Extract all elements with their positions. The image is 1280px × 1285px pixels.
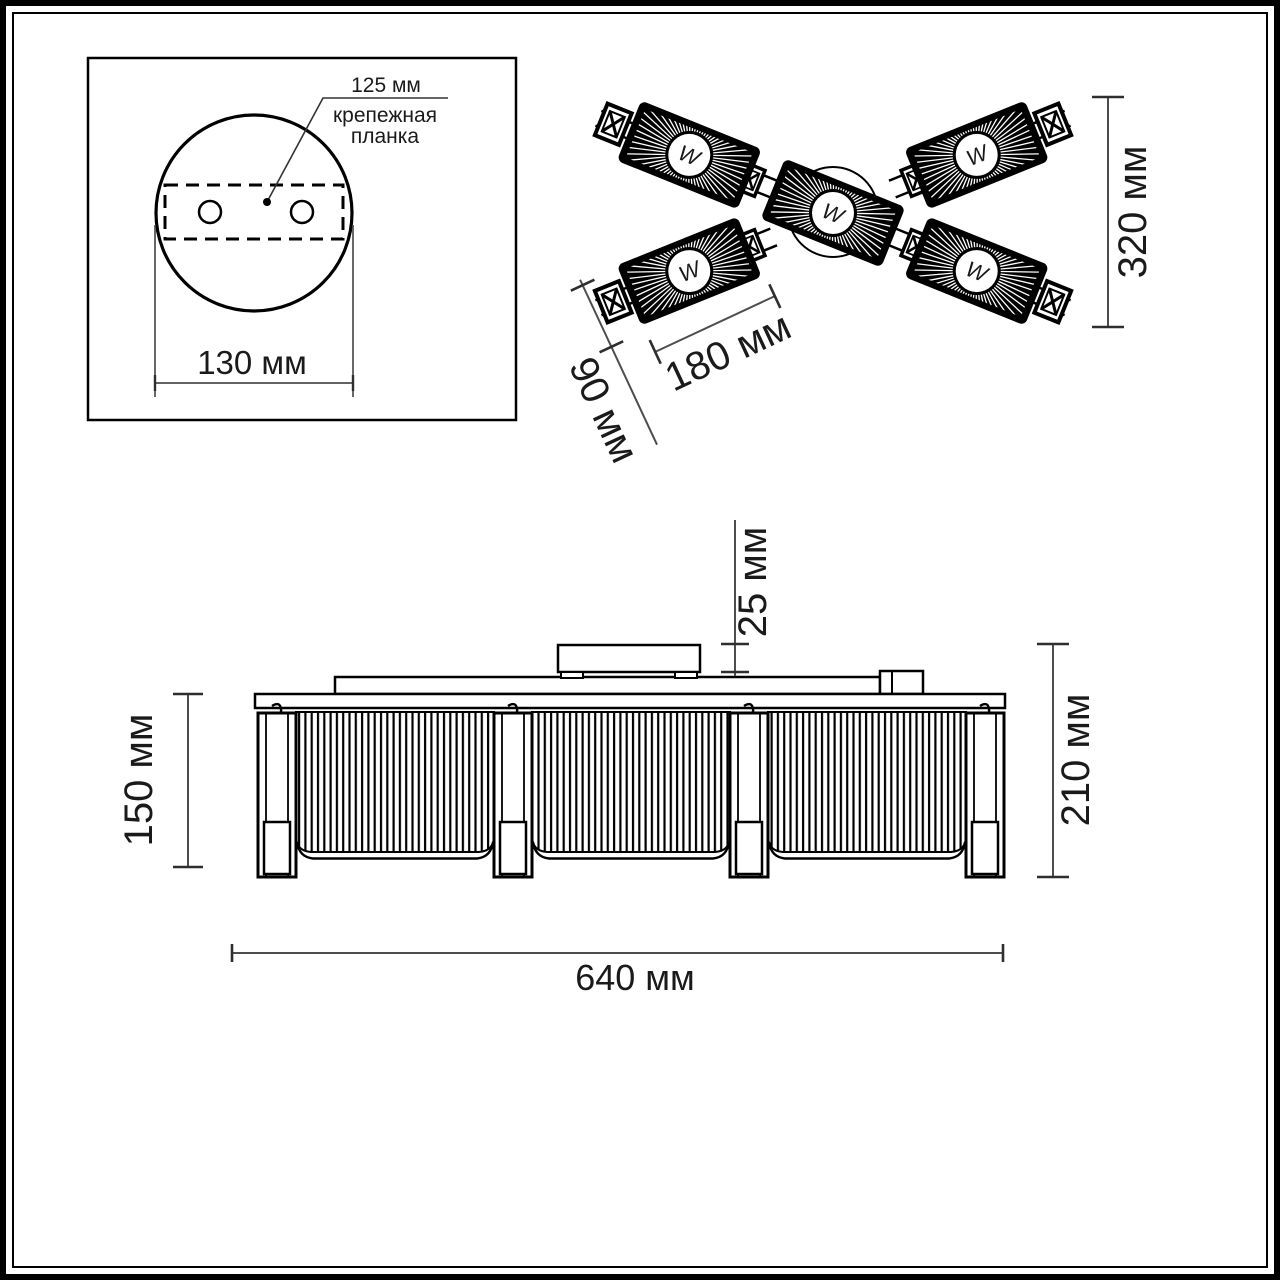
top-view: 320 мм 180 мм 90 мм [529, 44, 1155, 469]
outer-frame [3, 3, 1277, 1277]
dim-150-label: 150 мм [117, 714, 161, 847]
post-3 [730, 704, 768, 877]
drawing-page: W [0, 0, 1280, 1280]
mount-plate-step [880, 671, 923, 694]
dim-640-label: 640 мм [575, 957, 695, 998]
post-1 [258, 704, 296, 877]
mount-plate-upper [335, 677, 880, 694]
side-view: 25 мм 150 мм 210 мм 640 мм [117, 520, 1098, 998]
leader-dot [263, 198, 271, 206]
inner-frame [13, 13, 1267, 1267]
dim-90-label: 90 мм [560, 351, 647, 470]
dim-320-label: 320 мм [1111, 146, 1155, 279]
mounting-bracket-slot [165, 185, 343, 239]
bracket-label-line1: крепежная [333, 104, 437, 127]
screw-hole-right [291, 201, 313, 223]
mounting-plate-panel: 125 мм крепежная планка 130 мм [88, 58, 516, 420]
shade-upper-left [585, 51, 793, 259]
bracket-label-line2: планка [351, 125, 420, 148]
dim-210-label: 210 мм [1054, 694, 1098, 827]
shade-center [729, 109, 937, 317]
shade-sections [296, 712, 966, 859]
mount-plate-lower [255, 694, 1005, 708]
dim-130-label: 130 мм [197, 344, 307, 381]
shade-section-2 [532, 712, 730, 859]
post-4 [966, 704, 1004, 877]
canopy [558, 645, 700, 678]
shade-section-3 [768, 712, 966, 859]
post-2 [494, 704, 532, 877]
screw-hole-left [199, 201, 221, 223]
dim-150 [173, 694, 203, 867]
technical-drawing: W [0, 0, 1280, 1280]
shade-section-1 [296, 712, 494, 859]
dim-25-label: 25 мм [731, 527, 775, 638]
mounting-plate-circle [156, 115, 352, 311]
dim-125-label: 125 мм [351, 74, 421, 97]
shade-upper-right [873, 51, 1081, 259]
shade-lower-right [873, 167, 1081, 375]
